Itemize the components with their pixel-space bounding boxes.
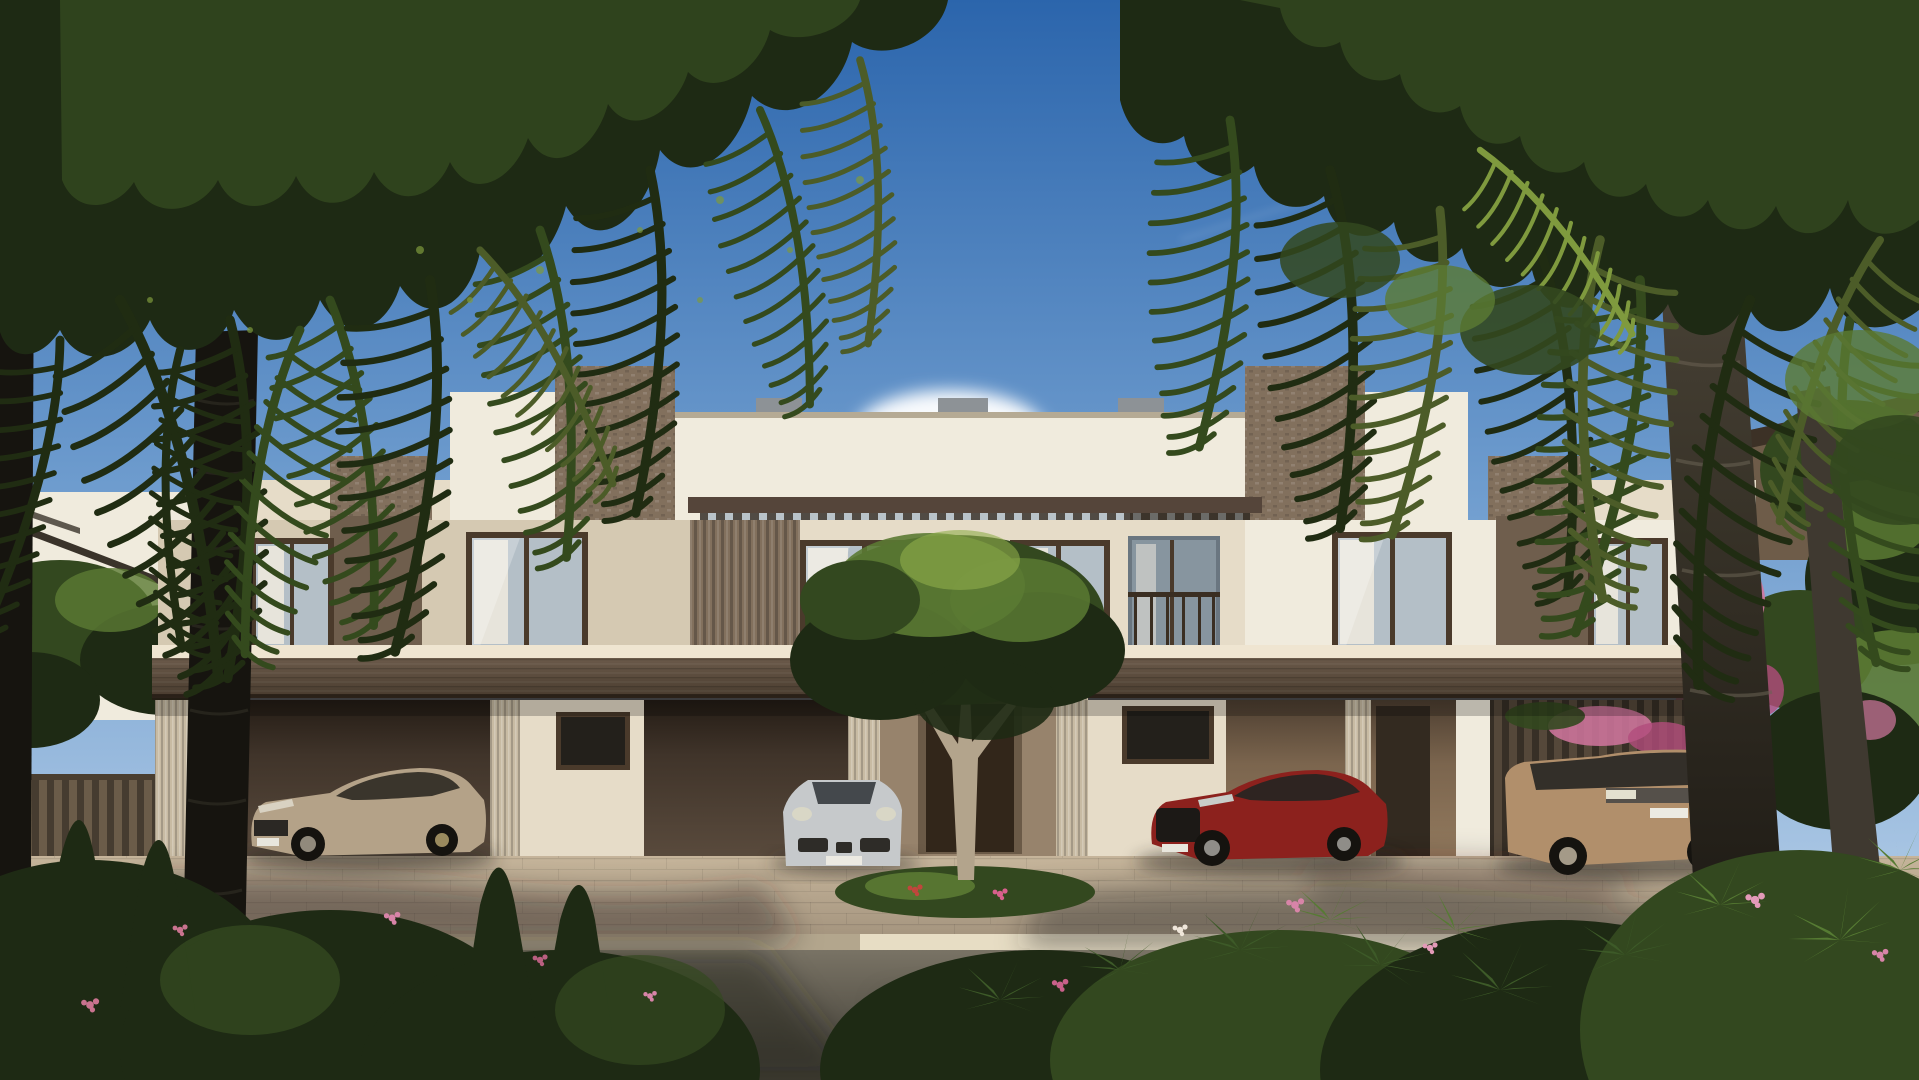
- render-canvas: Daytime architectural rendering: modern …: [0, 0, 1919, 1080]
- car-plate: [1650, 808, 1688, 818]
- architectural-render: Daytime architectural rendering: modern …: [0, 0, 1919, 1080]
- car-plate: [826, 856, 862, 865]
- parapet-edge: [675, 412, 1245, 418]
- car-grille: [254, 820, 288, 836]
- window: [1332, 532, 1452, 652]
- car-headlight: [876, 807, 896, 821]
- pergola-fascia: [688, 497, 1262, 513]
- car-grille: [1156, 808, 1200, 842]
- car-headlight: [792, 807, 812, 821]
- car-plate: [1162, 844, 1188, 852]
- recessed-balcony: [1128, 536, 1220, 655]
- car-headlight: [1606, 790, 1636, 799]
- gf-window-1: [556, 712, 630, 770]
- car-plate: [257, 838, 279, 846]
- gf-wall-3: [1456, 700, 1490, 860]
- car-windshield: [812, 782, 876, 804]
